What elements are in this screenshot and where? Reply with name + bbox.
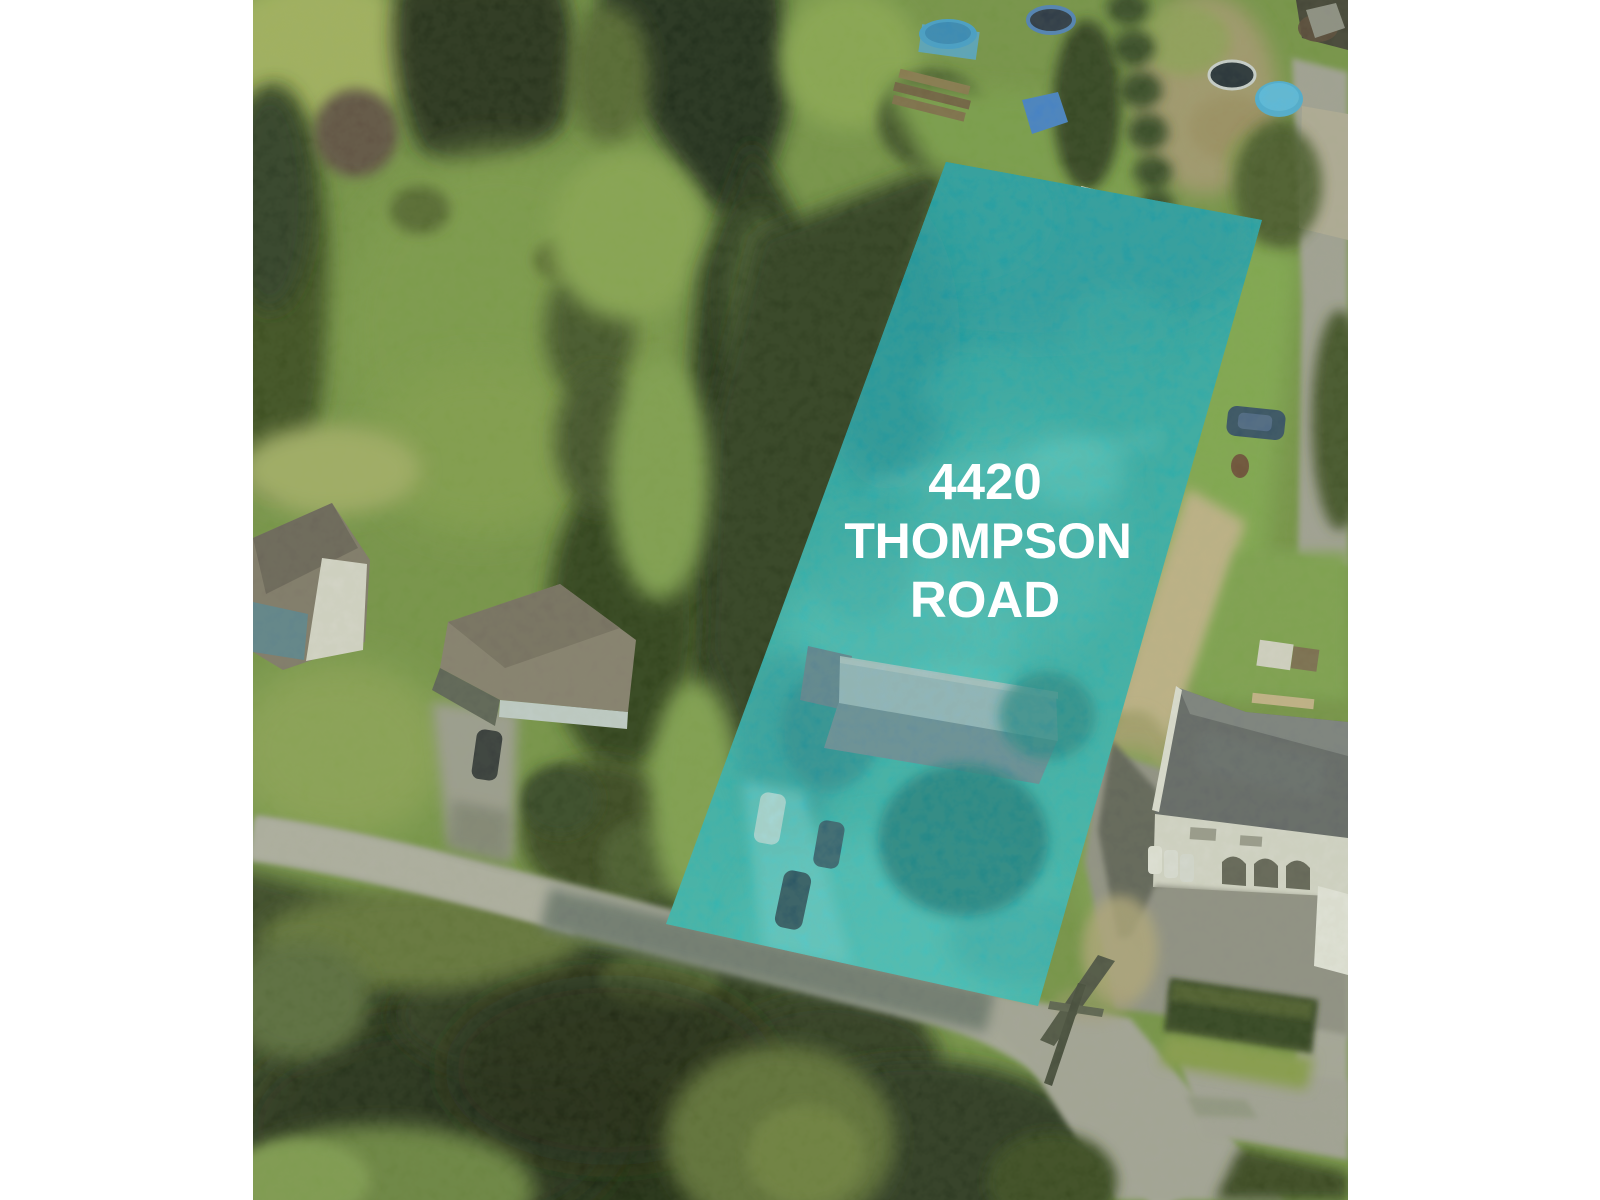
svg-text:THOMPSON: THOMPSON [844,513,1131,569]
svg-text:ROAD: ROAD [910,571,1060,628]
svg-text:4420: 4420 [928,453,1041,510]
